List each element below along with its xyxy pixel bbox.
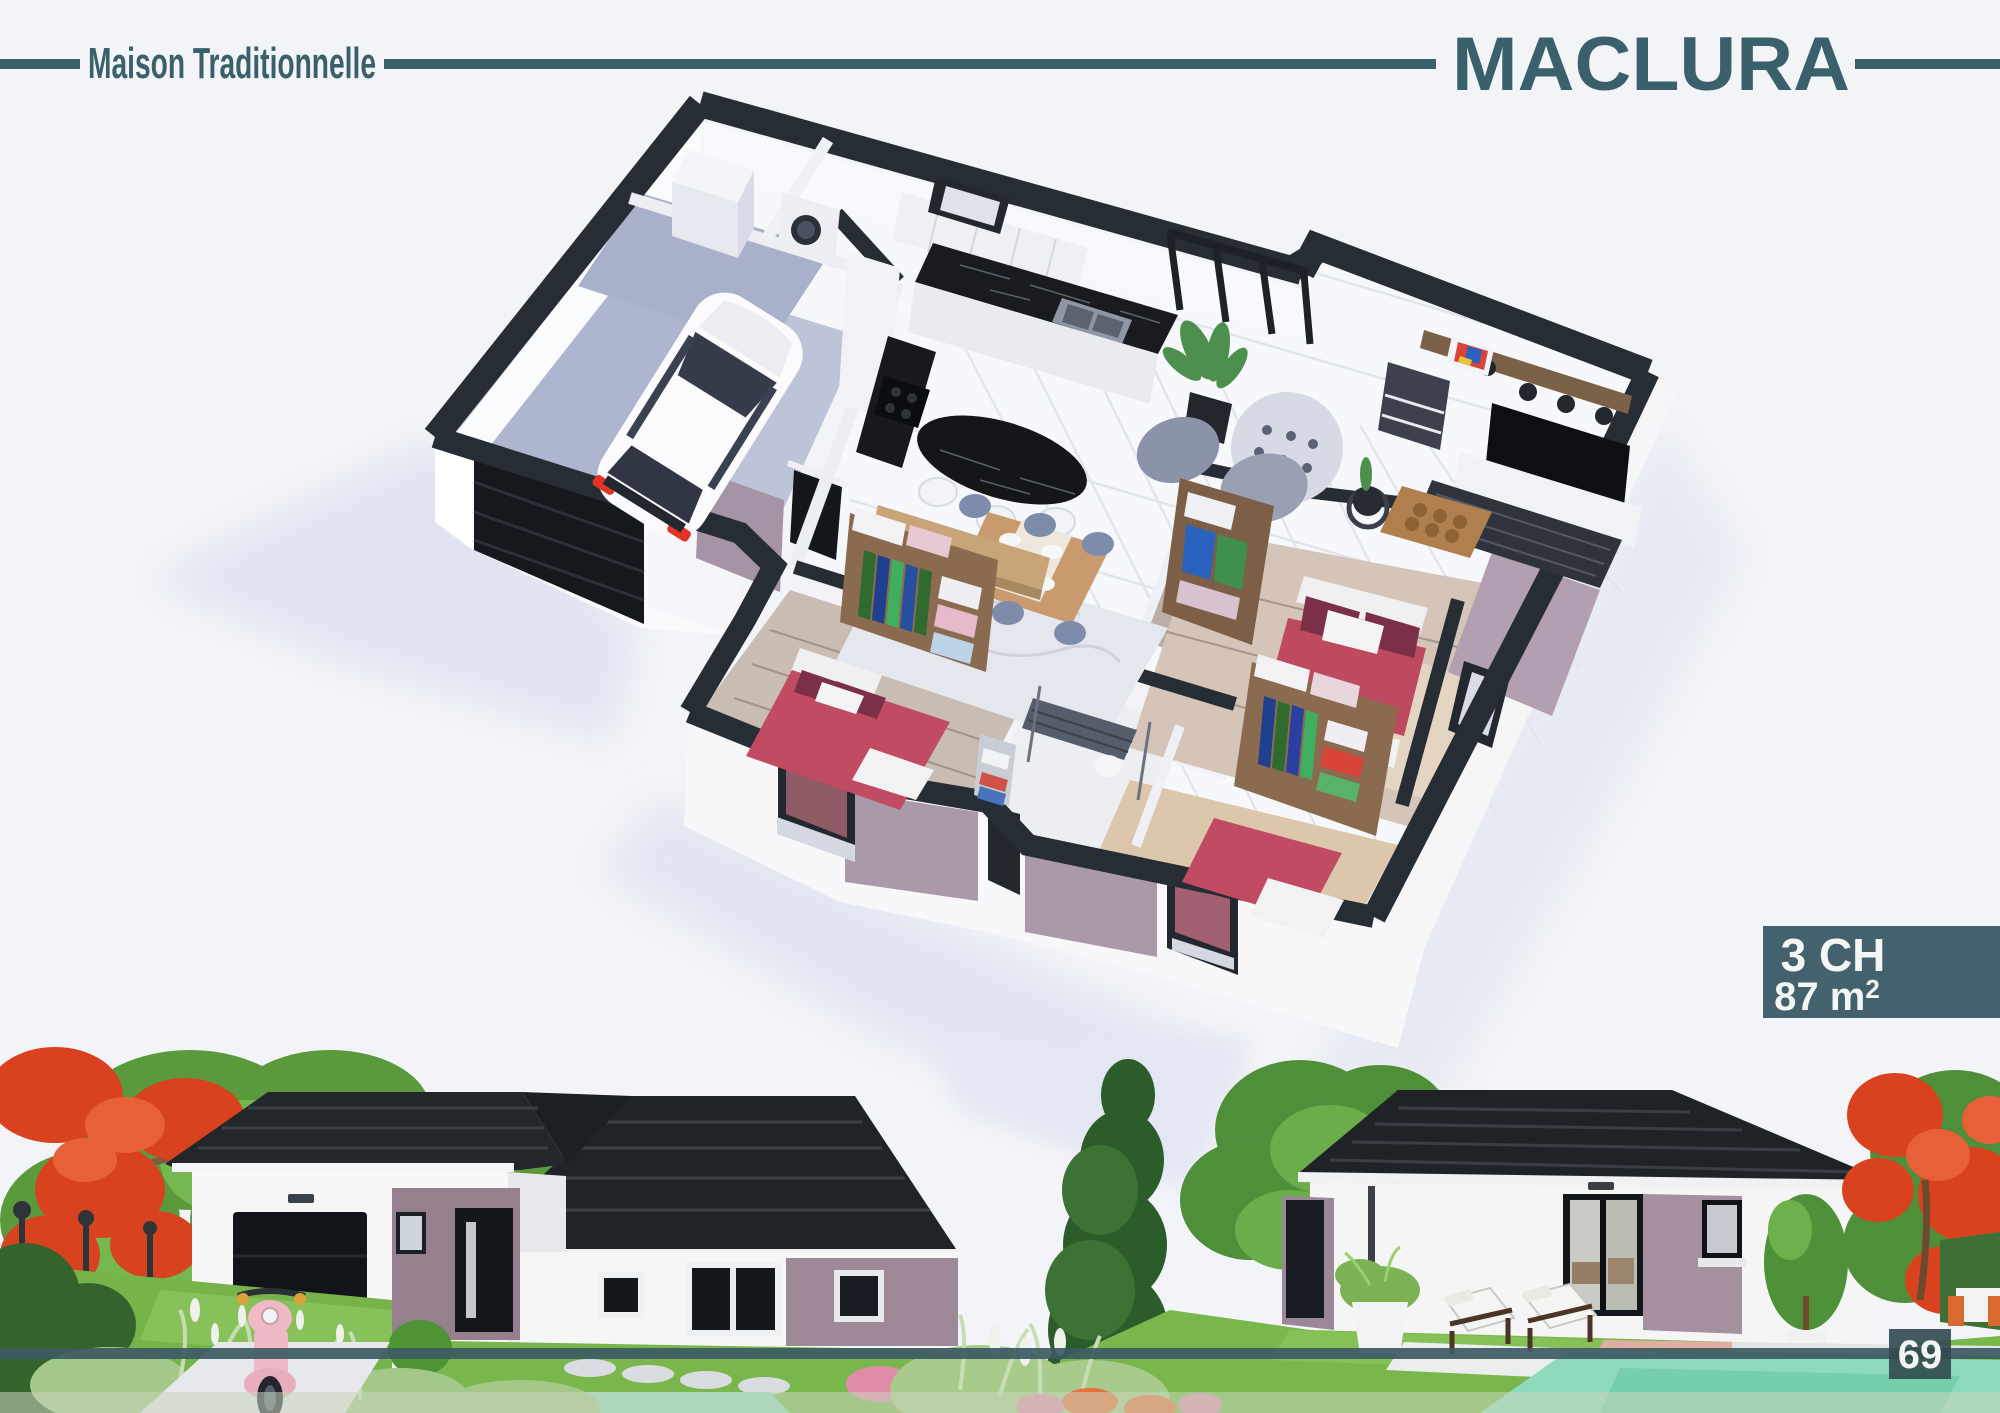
svg-text:87 m2: 87 m2 <box>1774 974 1880 1019</box>
svg-text:69: 69 <box>1898 1333 1943 1377</box>
svg-text:Maison Traditionnelle: Maison Traditionnelle <box>88 39 376 88</box>
svg-text:MACLURA: MACLURA <box>1452 22 1850 107</box>
